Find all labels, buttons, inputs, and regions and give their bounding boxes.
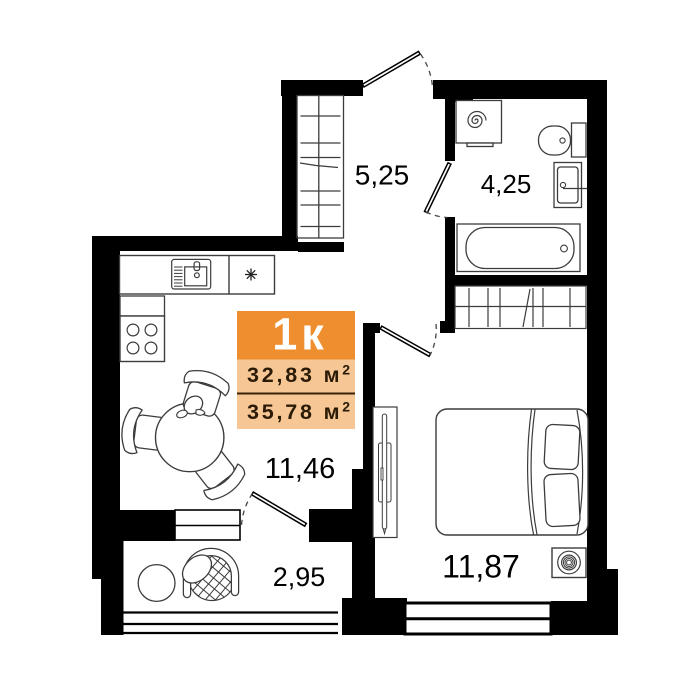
svg-text:5,25: 5,25 bbox=[355, 160, 410, 191]
svg-text:32,83 м2: 32,83 м2 bbox=[247, 362, 353, 388]
svg-text:11,87: 11,87 bbox=[442, 549, 520, 585]
svg-text:11,46: 11,46 bbox=[265, 453, 335, 485]
svg-text:2,95: 2,95 bbox=[273, 562, 326, 592]
svg-text:4,25: 4,25 bbox=[481, 169, 532, 199]
svg-text:1к: 1к bbox=[272, 309, 328, 360]
svg-text:35,78 м2: 35,78 м2 bbox=[247, 399, 353, 425]
